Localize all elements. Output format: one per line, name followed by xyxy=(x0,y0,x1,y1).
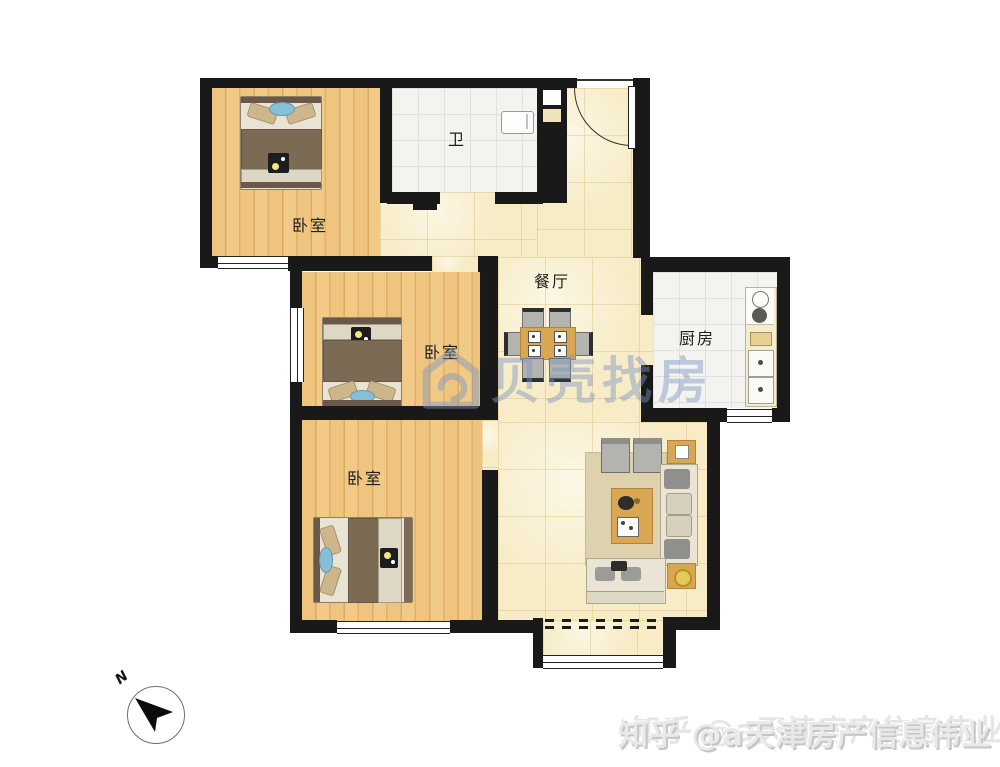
wall-left-upper xyxy=(200,78,212,268)
zhihu-credit-watermark: 知乎 @a天津房产信息伟业 xyxy=(618,710,992,754)
bed-tray xyxy=(380,548,398,568)
compass xyxy=(127,686,185,744)
bed-tray xyxy=(268,153,289,173)
double-bed xyxy=(322,317,402,407)
wall-kitchen-right xyxy=(777,257,790,422)
side-table xyxy=(667,563,696,589)
wall-bedroom-bathroom xyxy=(380,78,392,203)
beike-watermark: 贝壳找房 xyxy=(422,348,714,414)
window-bedroom-bottom xyxy=(337,621,450,634)
wall-bottom-a xyxy=(290,620,337,633)
floor-plan: 卧室 卫 餐厅 卧室 厨房 卧室 贝壳找房 N 知乎 @a天津房产信息伟业 xyxy=(0,0,1000,767)
window-bedroom-mid xyxy=(290,308,304,382)
sofa xyxy=(660,464,698,566)
compass-north-label: N xyxy=(112,668,131,688)
wall-bathroom-bottom-b xyxy=(495,192,543,204)
loveseat-sofa xyxy=(586,558,666,604)
window-balcony xyxy=(543,655,663,669)
decor-bowl xyxy=(674,569,692,587)
kitchen-counter xyxy=(745,287,777,407)
cup xyxy=(675,445,689,459)
duct-niche-white xyxy=(543,90,561,105)
window-bedroom-top xyxy=(218,256,288,269)
wall-balcony-left xyxy=(533,618,543,668)
wall-balcony-right xyxy=(663,618,676,668)
window-kitchen xyxy=(727,409,772,423)
side-table xyxy=(667,440,696,464)
wall-hall-bedrooms-b xyxy=(482,470,498,622)
stove-burner xyxy=(752,308,767,323)
double-bed xyxy=(240,96,322,190)
balcony-boundary-dashed xyxy=(545,619,661,622)
wall-bedrooms-divider-top xyxy=(288,256,432,271)
bedroom-bottom-doorway xyxy=(482,420,498,470)
armchair xyxy=(601,438,630,473)
wall-stub xyxy=(200,256,218,268)
kitchen-sink xyxy=(752,291,769,308)
wall-pier xyxy=(413,198,437,210)
armchair xyxy=(633,438,662,473)
entry-lintel xyxy=(577,79,633,81)
wall-kitchen-left-a xyxy=(641,257,653,315)
duct-niche xyxy=(543,109,561,122)
room-label-bedroom-top: 卧室 xyxy=(292,212,328,236)
washing-machine xyxy=(501,111,534,134)
room-label-bathroom: 卫 xyxy=(448,126,466,150)
balcony-boundary-dashed xyxy=(545,626,661,629)
entry-door-leaf xyxy=(628,86,636,149)
room-label-dining: 餐厅 xyxy=(534,268,570,292)
room-label-bedroom-bottom: 卧室 xyxy=(347,465,383,489)
small-appliance xyxy=(750,332,772,346)
room-label-kitchen: 厨房 xyxy=(679,325,715,349)
north-arrow-icon xyxy=(128,687,184,743)
beike-logo-icon xyxy=(422,348,480,414)
double-bed xyxy=(313,517,413,603)
wall-kitchen-top xyxy=(650,257,790,272)
coffee-table xyxy=(611,488,653,544)
bedroom-mid-doorway xyxy=(432,256,478,272)
wall-living-right xyxy=(707,415,720,630)
beike-watermark-text: 贝壳找房 xyxy=(490,356,714,406)
